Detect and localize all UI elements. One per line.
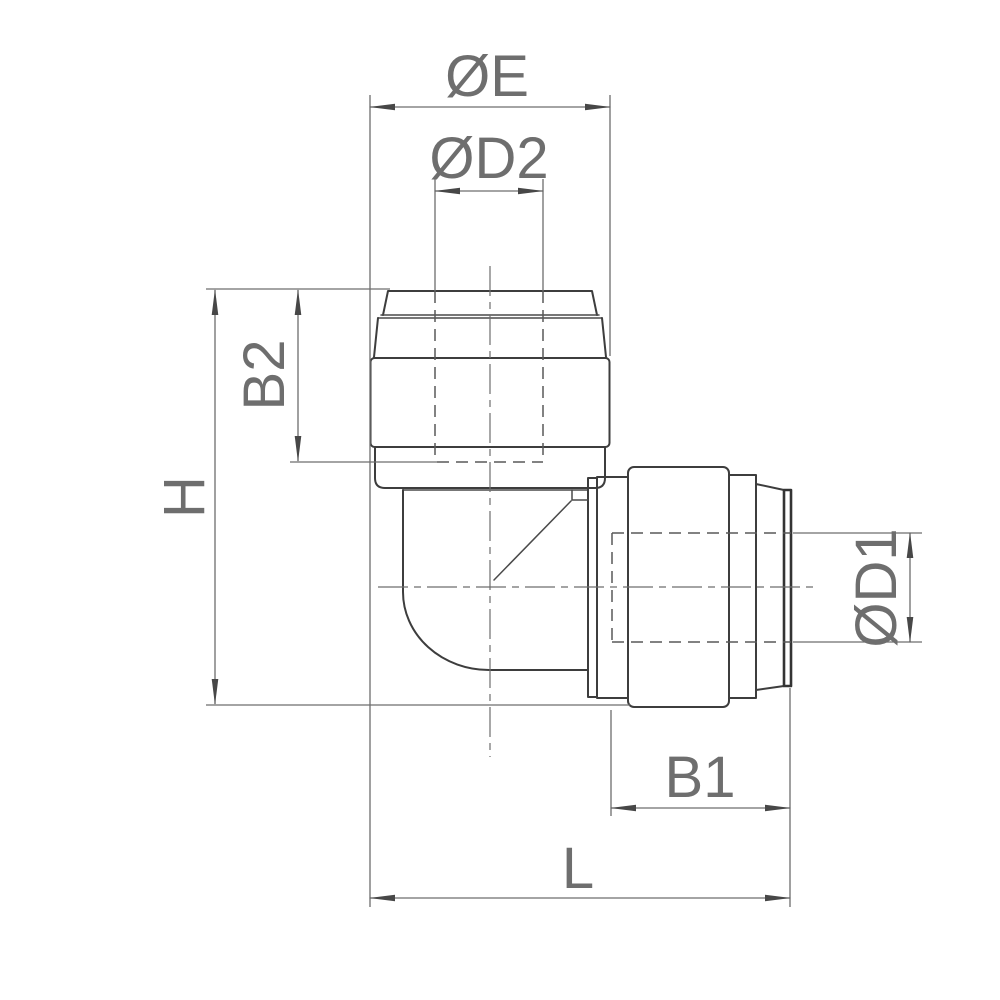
dimension-label-od1: ØD1 bbox=[844, 528, 909, 647]
dimension-label-b1: B1 bbox=[665, 745, 736, 810]
dimension-label-l: L bbox=[562, 836, 594, 901]
dimension-label-oe: ØE bbox=[445, 44, 529, 109]
dimension-label-b2: B2 bbox=[232, 340, 297, 411]
dimension-label-od2: ØD2 bbox=[429, 126, 548, 191]
dimension-label-h: H bbox=[152, 476, 217, 518]
elbow-fitting-drawing: ØE ØD2 B2 H ØD1 B1 L bbox=[0, 0, 1000, 1000]
technical-drawing-canvas: ØE ØD2 B2 H ØD1 B1 L bbox=[0, 0, 1000, 1000]
